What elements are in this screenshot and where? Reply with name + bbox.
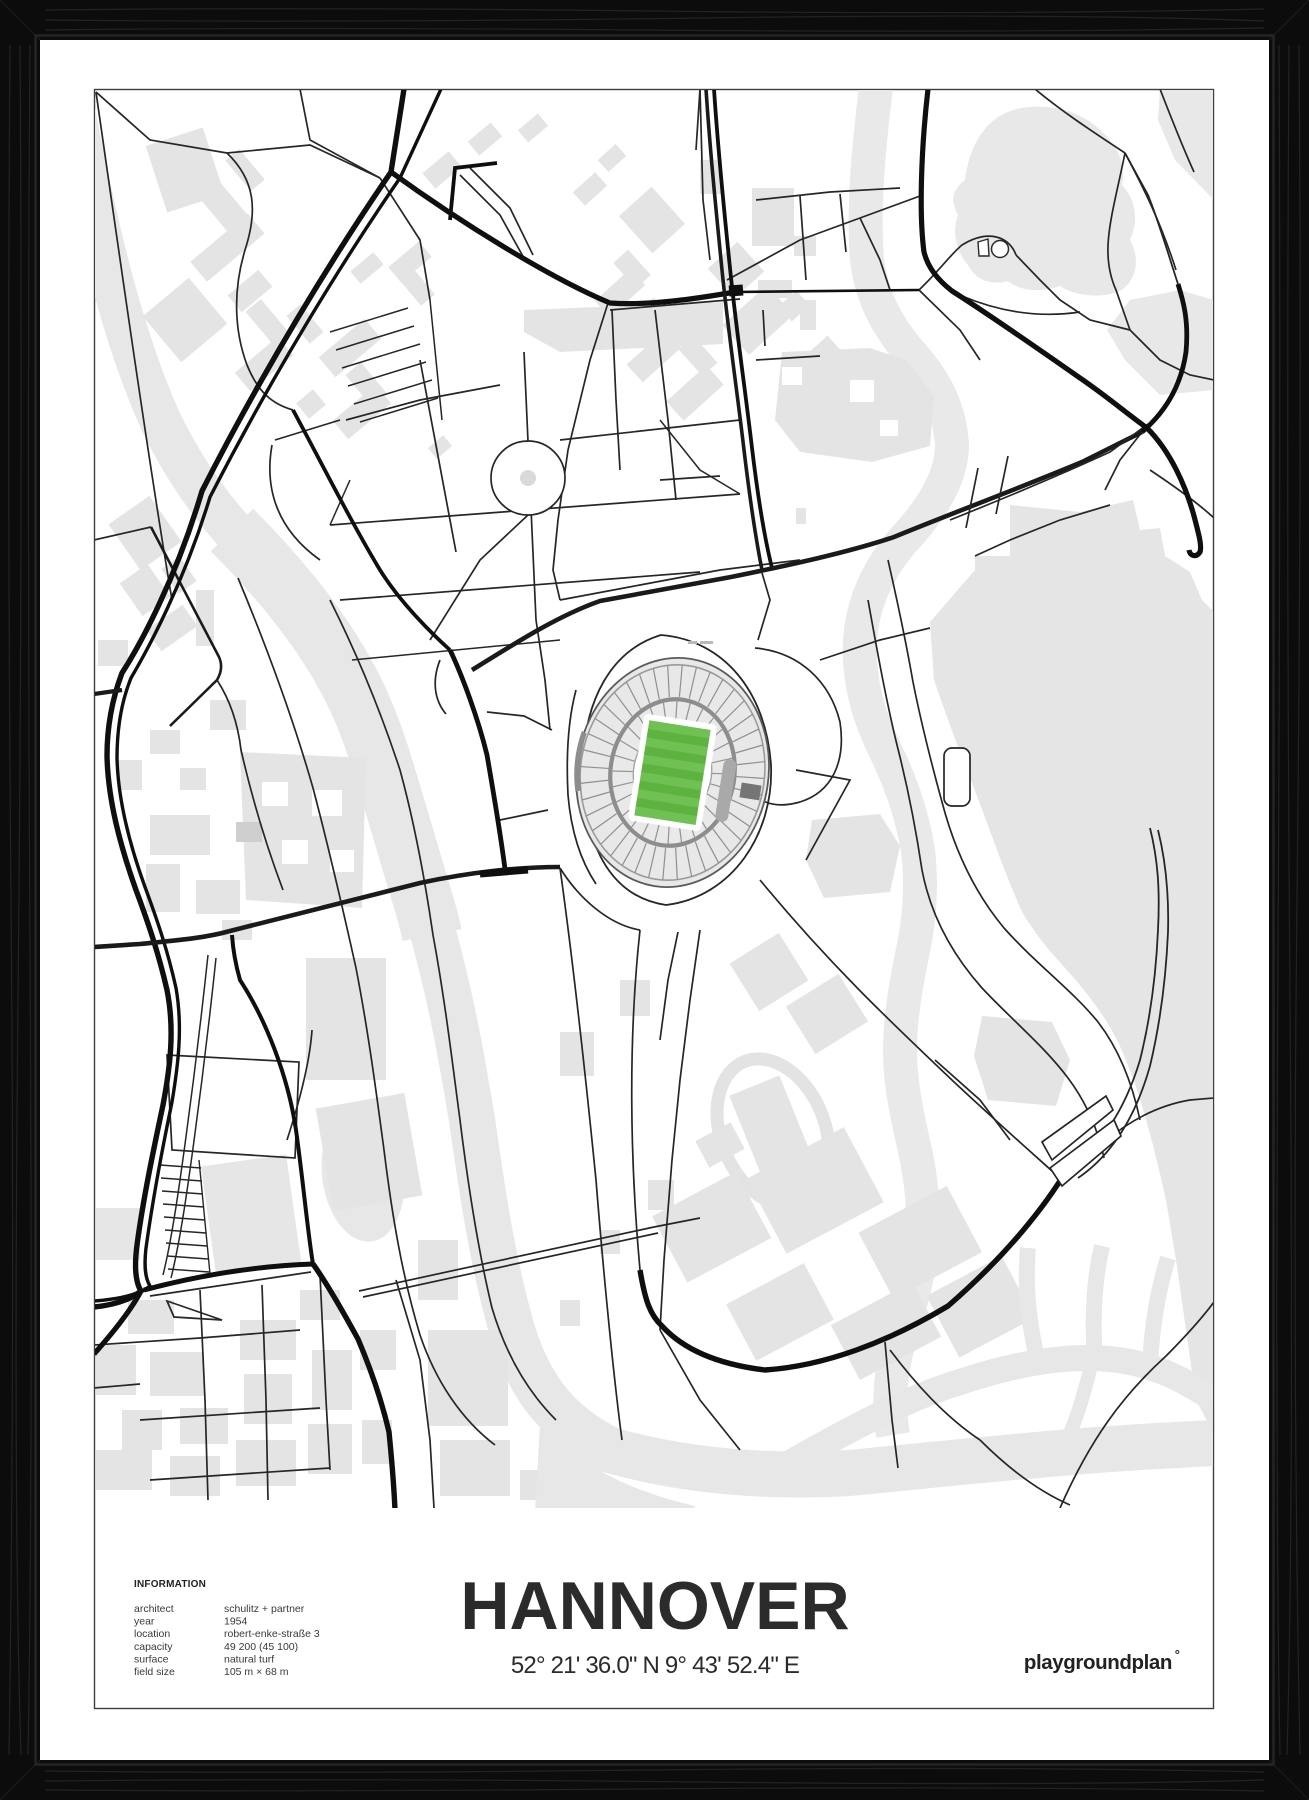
svg-text:49 200 (45 100): 49 200 (45 100) — [224, 1641, 298, 1653]
svg-text:natural turf: natural turf — [224, 1653, 274, 1665]
svg-text:field size: field size — [134, 1666, 175, 1678]
svg-text:HANNOVER: HANNOVER — [460, 1568, 849, 1644]
svg-text:°: ° — [1175, 1647, 1180, 1662]
svg-text:capacity: capacity — [134, 1641, 173, 1653]
svg-text:surface: surface — [134, 1653, 169, 1665]
svg-text:location: location — [134, 1628, 170, 1640]
svg-text:105 m × 68 m: 105 m × 68 m — [224, 1666, 289, 1678]
svg-text:robert-enke-straße 3: robert-enke-straße 3 — [224, 1628, 320, 1640]
svg-text:INFORMATION: INFORMATION — [134, 1579, 206, 1590]
svg-text:architect: architect — [134, 1603, 174, 1615]
svg-text:playgroundplan: playgroundplan — [1024, 1651, 1172, 1674]
svg-text:52° 21' 36.0" N 9° 43' 52.4": 52° 21' 36.0" N 9° 43' 52.4" E — [511, 1652, 799, 1679]
svg-text:schulitz + partner: schulitz + partner — [224, 1603, 305, 1615]
svg-text:year: year — [134, 1616, 155, 1628]
svg-text:1954: 1954 — [224, 1616, 248, 1628]
